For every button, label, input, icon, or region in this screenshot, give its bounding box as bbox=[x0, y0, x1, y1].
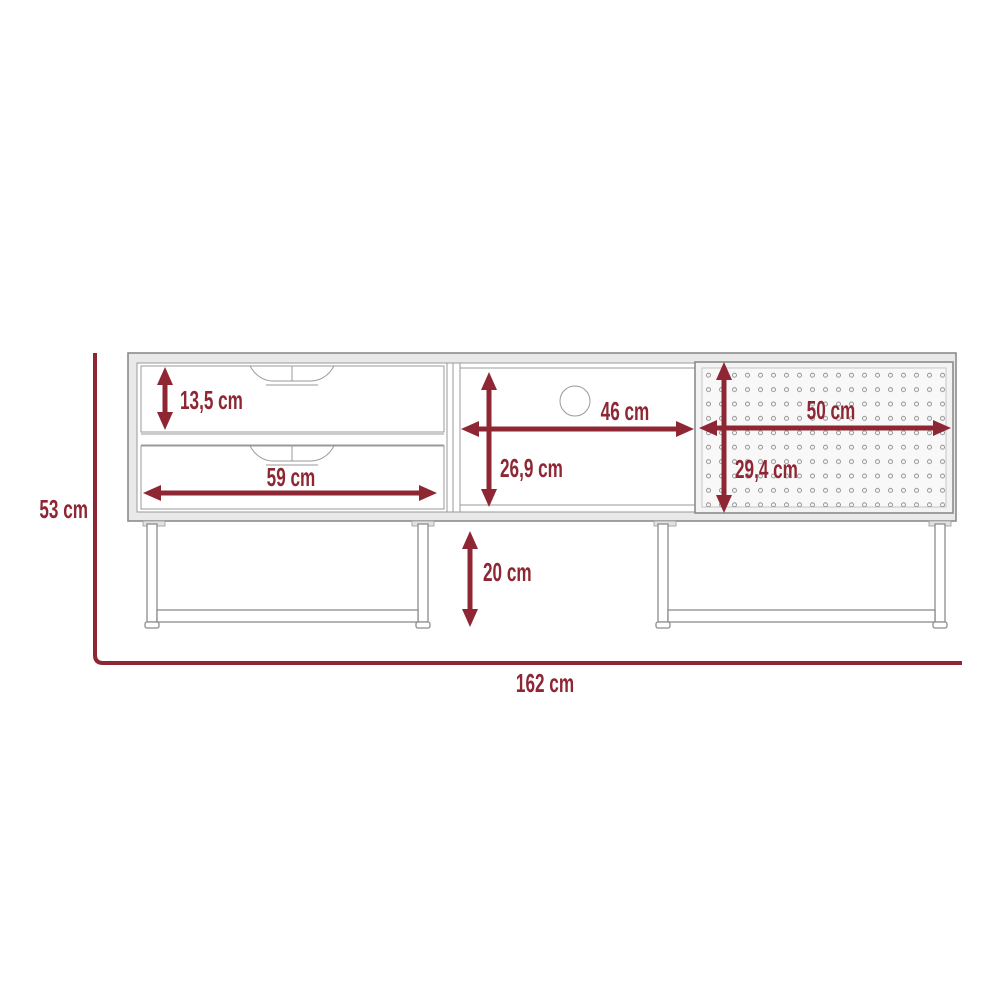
svg-text:26,9 cm: 26,9 cm bbox=[500, 453, 563, 483]
dim-label-shelf-width: 46 cm bbox=[601, 396, 650, 426]
svg-text:53 cm: 53 cm bbox=[39, 494, 88, 524]
right-leg-frame bbox=[654, 521, 951, 628]
svg-text:46 cm: 46 cm bbox=[601, 396, 650, 426]
dim-label-drawer-height: 13,5 cm bbox=[180, 385, 243, 415]
perforated-sliding-door bbox=[695, 362, 953, 513]
right-leg-foot-a bbox=[656, 622, 670, 628]
right-leg-bar-b bbox=[935, 524, 945, 622]
left-leg-foot-b bbox=[416, 622, 430, 628]
right-leg-bar-a bbox=[658, 524, 668, 622]
dim-label-drawer-width: 59 cm bbox=[267, 462, 316, 492]
svg-text:59 cm: 59 cm bbox=[267, 462, 316, 492]
dim-arrow-leg-height bbox=[462, 531, 478, 627]
svg-text:29,4 cm: 29,4 cm bbox=[735, 454, 798, 484]
left-leg-crossbar bbox=[157, 610, 418, 622]
dim-label-shelf-height: 26,9 cm bbox=[500, 453, 563, 483]
dim-label-leg-height: 20 cm bbox=[483, 557, 532, 587]
left-leg-bar-a bbox=[147, 524, 157, 622]
left-leg-bar-b bbox=[418, 524, 428, 622]
svg-text:50 cm: 50 cm bbox=[807, 395, 856, 425]
dim-label-total-height: 53 cm bbox=[39, 494, 88, 524]
tv-stand-dimension-diagram: 13,5 cm 59 cm 26,9 cm 46 cm 29,4 cm 50 c… bbox=[0, 0, 1000, 1000]
door-perforation-pattern bbox=[702, 368, 946, 507]
right-leg-foot-b bbox=[933, 622, 947, 628]
svg-text:20 cm: 20 cm bbox=[483, 557, 532, 587]
left-leg-foot-a bbox=[145, 622, 159, 628]
dim-label-total-width: 162 cm bbox=[516, 668, 574, 698]
svg-text:162 cm: 162 cm bbox=[516, 668, 574, 698]
dim-label-door-width: 50 cm bbox=[807, 395, 856, 425]
dimension-drawing-canvas: 13,5 cm 59 cm 26,9 cm 46 cm 29,4 cm 50 c… bbox=[0, 0, 1000, 1000]
left-leg-frame bbox=[143, 521, 434, 628]
svg-text:13,5 cm: 13,5 cm bbox=[180, 385, 243, 415]
dim-label-door-height: 29,4 cm bbox=[735, 454, 798, 484]
right-leg-crossbar bbox=[668, 610, 935, 622]
